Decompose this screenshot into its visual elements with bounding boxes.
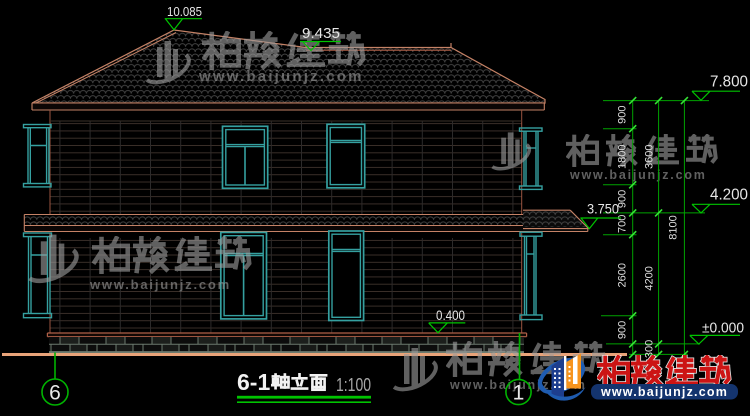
svg-text:6-1: 6-1 <box>237 369 270 395</box>
svg-text:9.435: 9.435 <box>302 25 340 42</box>
svg-text:1: 1 <box>513 382 525 405</box>
svg-text:2600: 2600 <box>617 263 629 287</box>
svg-text:www.baijunjz.com: www.baijunjz.com <box>89 277 231 292</box>
svg-text:700: 700 <box>617 215 629 233</box>
svg-text:4200: 4200 <box>644 266 656 290</box>
svg-text:8100: 8100 <box>668 215 680 239</box>
svg-text:±0.000: ±0.000 <box>702 321 744 337</box>
svg-text:900: 900 <box>617 106 629 124</box>
svg-text:6: 6 <box>49 382 61 405</box>
svg-text:0.400: 0.400 <box>436 307 465 323</box>
svg-text:7.800: 7.800 <box>710 74 748 91</box>
svg-text:1:100: 1:100 <box>336 375 371 395</box>
svg-text:www.baijunjz.com: www.baijunjz.com <box>198 68 364 85</box>
svg-text:3.750: 3.750 <box>587 201 619 217</box>
svg-text:1800: 1800 <box>617 145 629 169</box>
svg-text:3600: 3600 <box>644 145 656 169</box>
svg-text:900: 900 <box>617 321 629 339</box>
svg-text:www.baijunjz.com: www.baijunjz.com <box>600 385 728 399</box>
svg-text:10.085: 10.085 <box>167 4 202 19</box>
svg-text:4.200: 4.200 <box>710 187 748 204</box>
svg-text:www.baijunjz.com: www.baijunjz.com <box>569 168 707 182</box>
